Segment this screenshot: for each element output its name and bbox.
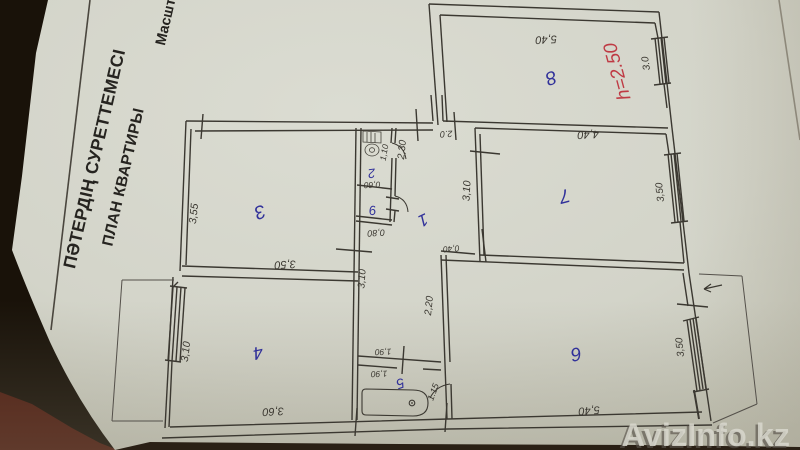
svg-text:5,40: 5,40	[534, 32, 557, 45]
svg-text:0,40: 0,40	[442, 243, 459, 254]
svg-text:1,90: 1,90	[370, 369, 387, 380]
svg-text:0,80: 0,80	[367, 228, 385, 239]
svg-text:AvizInfo.kz: AvizInfo.kz	[622, 417, 791, 450]
svg-text:3.0: 3.0	[640, 55, 653, 71]
svg-text:3,10: 3,10	[356, 268, 368, 289]
svg-text:3,50: 3,50	[273, 257, 296, 270]
svg-text:3,50: 3,50	[674, 337, 687, 358]
svg-text:3,10: 3,10	[179, 341, 193, 363]
svg-text:3,55: 3,55	[187, 203, 201, 225]
svg-text:2,20: 2,20	[423, 295, 436, 317]
svg-text:5,40: 5,40	[577, 403, 600, 417]
svg-text:4,40: 4,40	[576, 127, 599, 140]
svg-text:1,90: 1,90	[374, 347, 391, 358]
svg-text:3,10: 3,10	[460, 180, 473, 201]
svg-text:3,60: 3,60	[261, 404, 284, 417]
svg-text:2,30: 2,30	[396, 139, 409, 161]
svg-text:3,50: 3,50	[654, 182, 667, 203]
svg-text:2.0: 2.0	[440, 128, 454, 139]
